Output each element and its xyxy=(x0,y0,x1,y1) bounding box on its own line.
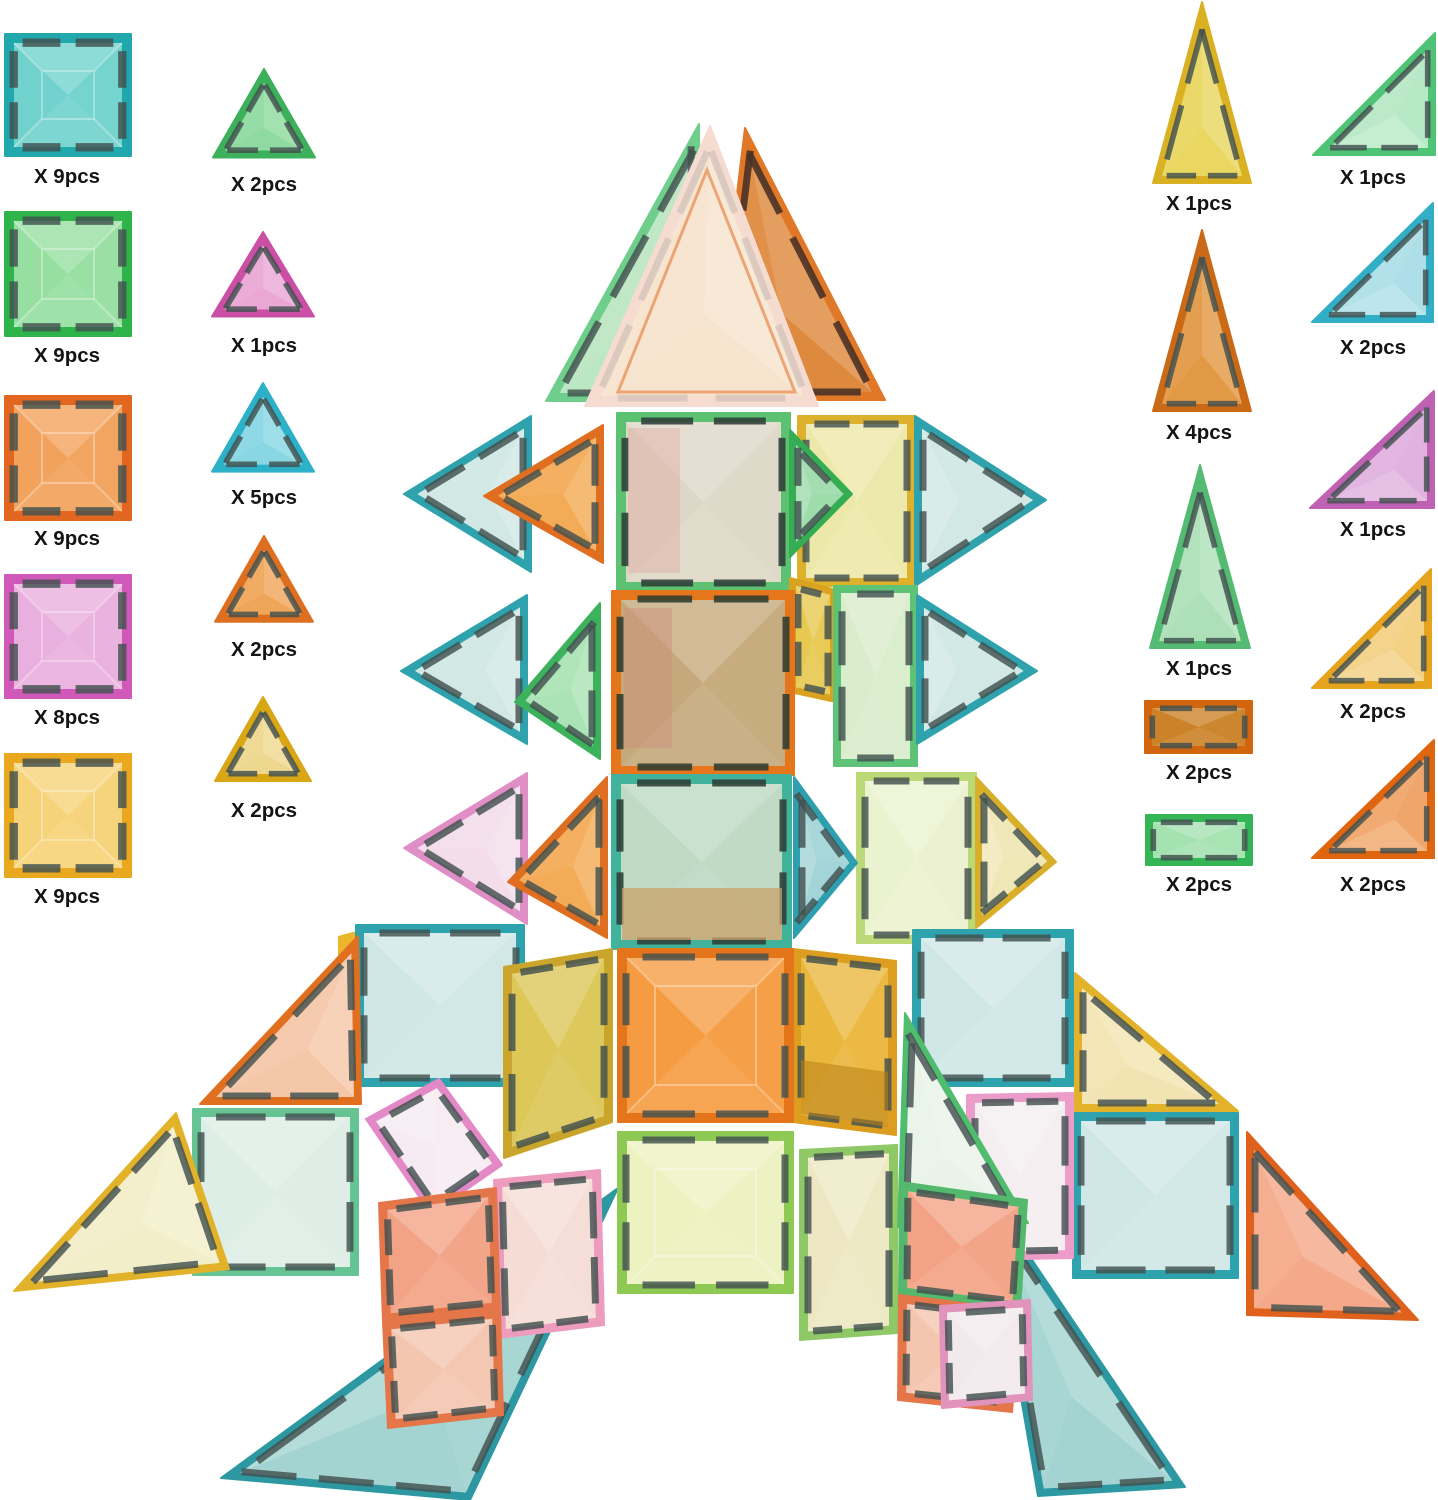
svg-text:X 2pcs: X 2pcs xyxy=(231,799,297,822)
svg-text:X 1pcs: X 1pcs xyxy=(231,334,297,357)
svg-text:X 1pcs: X 1pcs xyxy=(1340,166,1406,189)
svg-text:X 2pcs: X 2pcs xyxy=(1340,336,1406,359)
svg-text:X 2pcs: X 2pcs xyxy=(231,638,297,661)
svg-text:X 2pcs: X 2pcs xyxy=(1340,700,1406,723)
svg-text:X 2pcs: X 2pcs xyxy=(1166,873,1232,896)
svg-text:X 2pcs: X 2pcs xyxy=(1166,761,1232,784)
svg-text:X 1pcs: X 1pcs xyxy=(1340,518,1406,541)
svg-text:X 5pcs: X 5pcs xyxy=(231,486,297,509)
svg-text:X 9pcs: X 9pcs xyxy=(34,527,100,550)
svg-text:X 1pcs: X 1pcs xyxy=(1166,192,1232,215)
svg-text:X 2pcs: X 2pcs xyxy=(231,173,297,196)
svg-text:X 9pcs: X 9pcs xyxy=(34,344,100,367)
svg-text:X 4pcs: X 4pcs xyxy=(1166,421,1232,444)
svg-text:X 9pcs: X 9pcs xyxy=(34,165,100,188)
svg-text:X 1pcs: X 1pcs xyxy=(1166,657,1232,680)
svg-text:X 2pcs: X 2pcs xyxy=(1340,873,1406,896)
svg-text:X 9pcs: X 9pcs xyxy=(34,885,100,908)
svg-text:X 8pcs: X 8pcs xyxy=(34,706,100,729)
